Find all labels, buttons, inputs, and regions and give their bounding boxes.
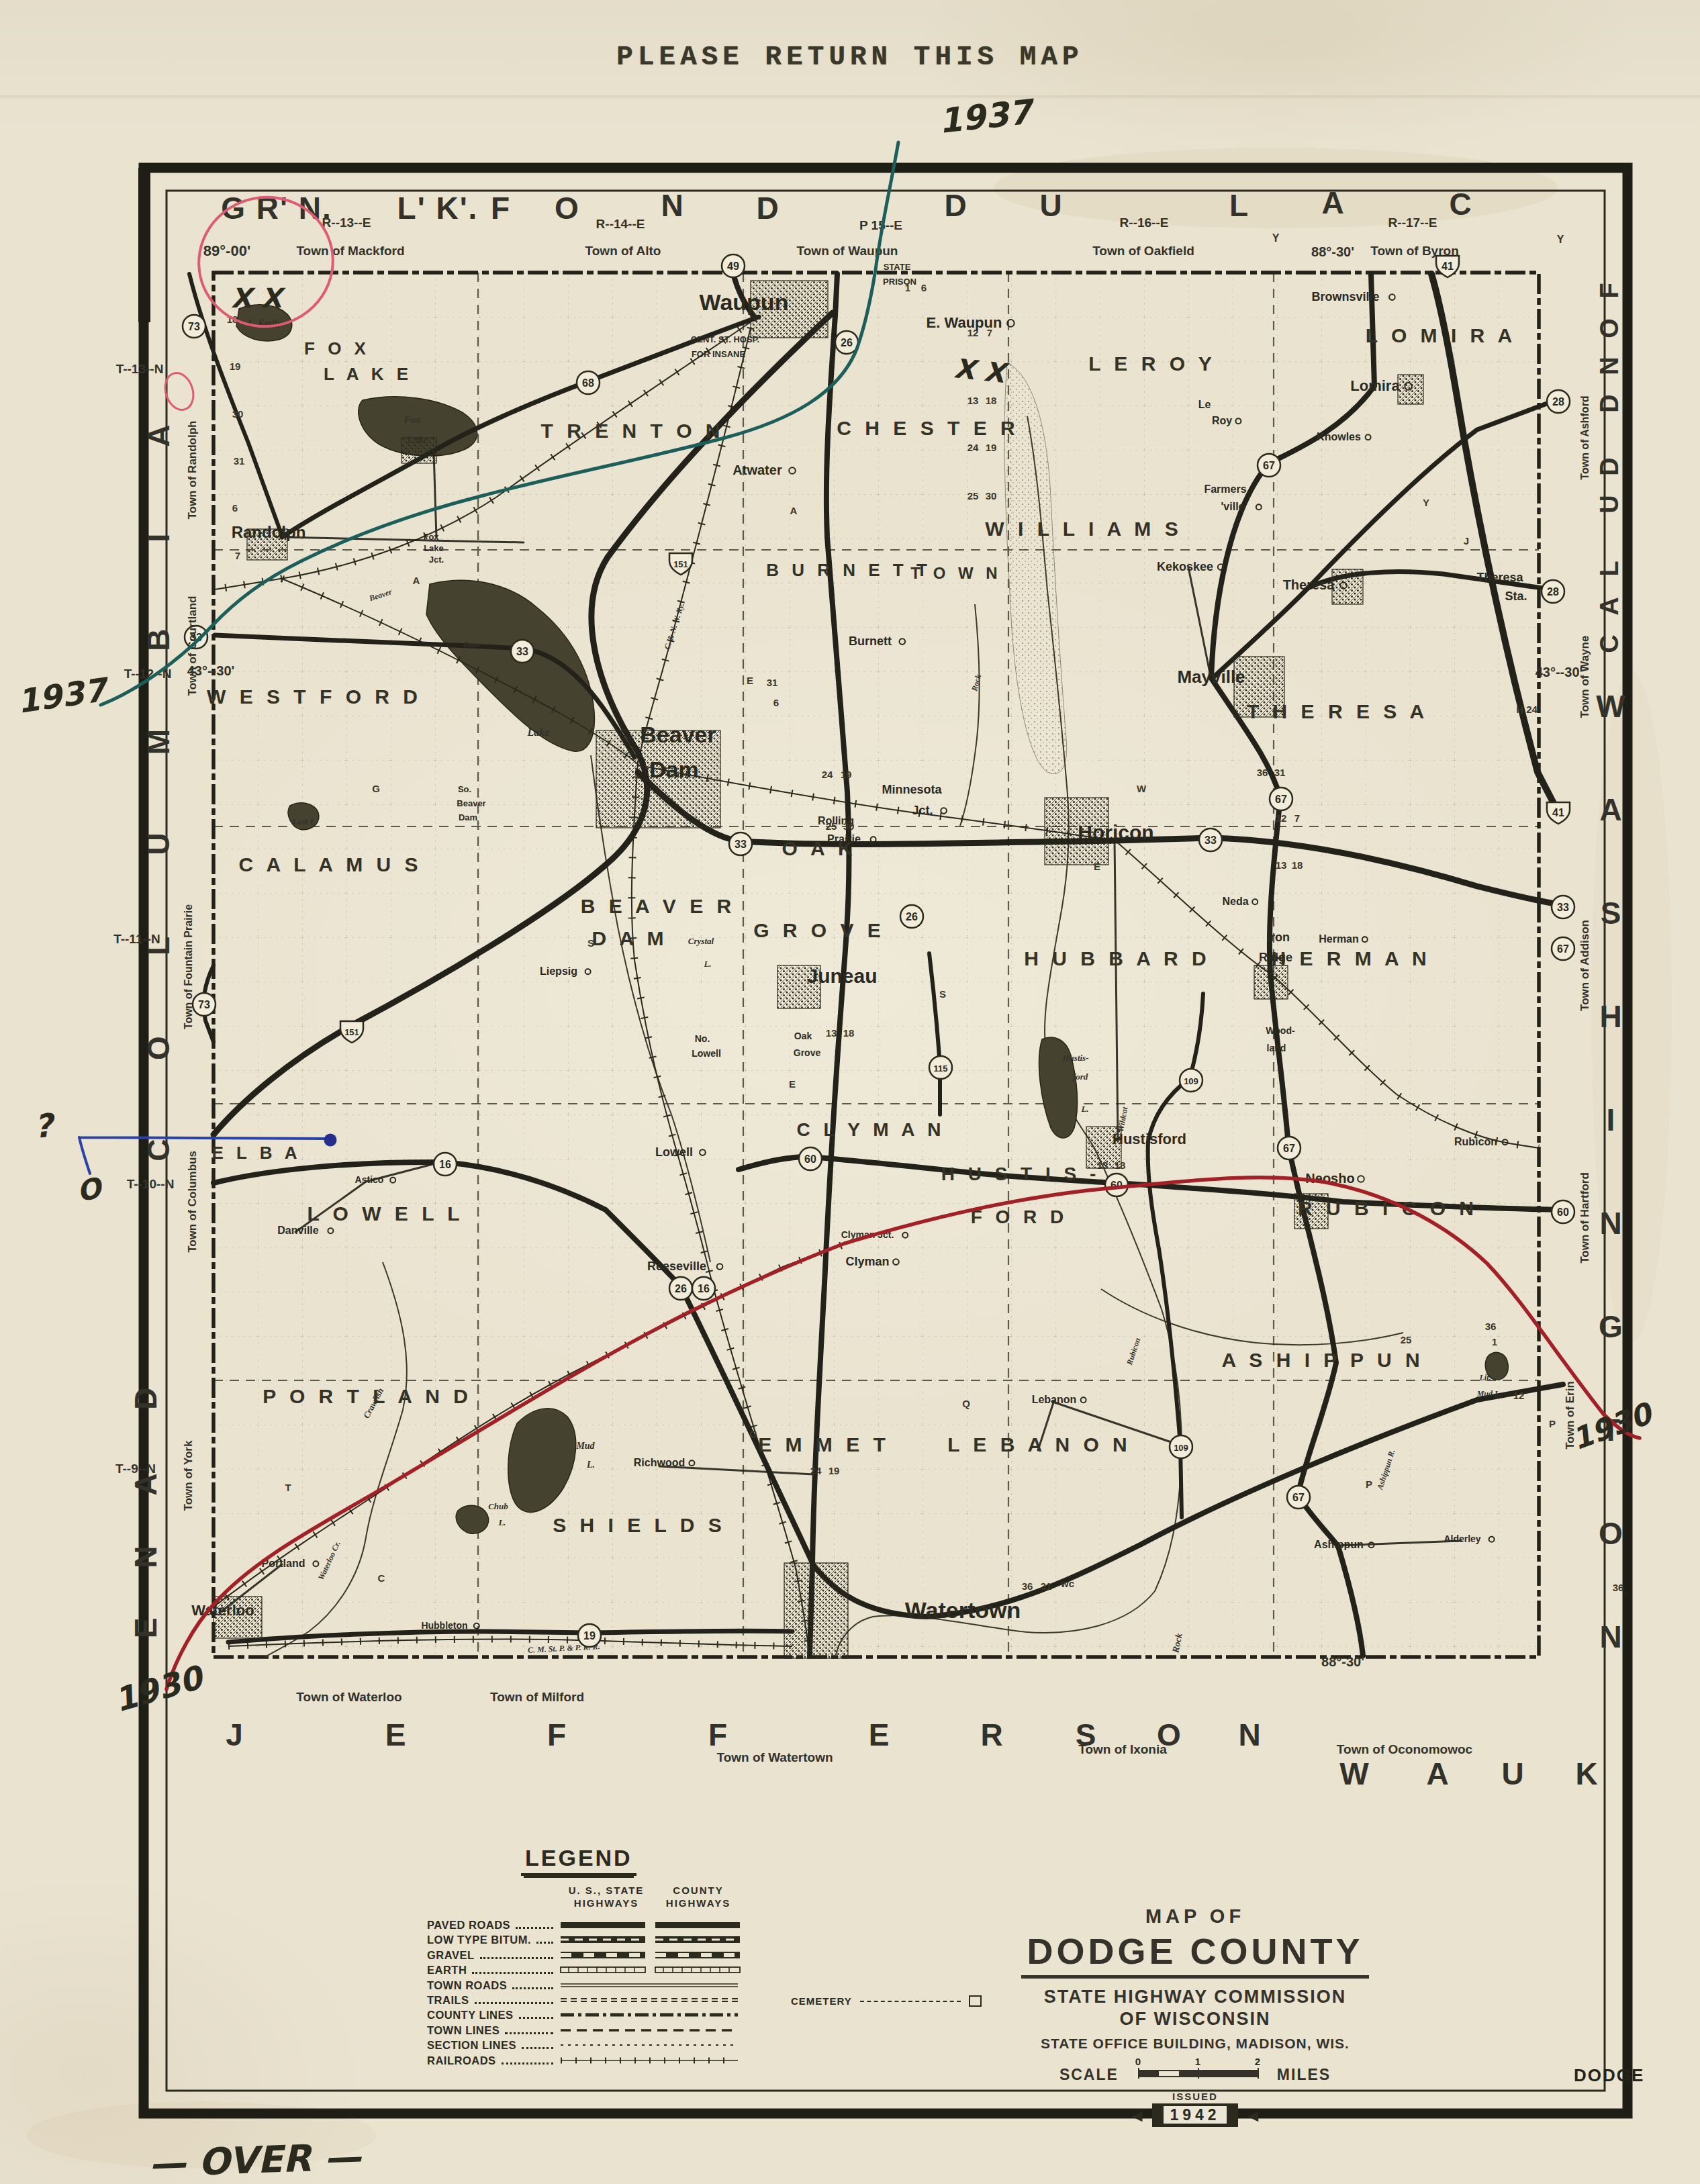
border-label: 88°-30' xyxy=(1311,244,1354,259)
highway-number: 151 xyxy=(344,1027,359,1037)
legend-row-text: PAVED ROADS xyxy=(427,1919,510,1932)
township-label: E M M E T xyxy=(758,1433,890,1456)
state-highway-shield-28: 28 xyxy=(1542,580,1564,603)
border-label: T--9--N xyxy=(115,1462,156,1476)
adjacent-county-letter: S xyxy=(1601,896,1623,931)
issued-year-box: 1942 xyxy=(1152,2103,1237,2127)
place-label: Lowell xyxy=(655,1145,693,1159)
adjacent-county-letter: W xyxy=(1596,689,1626,724)
adjacent-county-letter: R xyxy=(980,1717,1004,1752)
legend-row-gravel: GRAVEL xyxy=(415,1948,751,1962)
section-number: 36 xyxy=(1485,1321,1497,1332)
place-label: Watertown xyxy=(905,1597,1021,1623)
section-number: 19 xyxy=(841,769,852,780)
legend-row-county_lines: COUNTY LINES xyxy=(415,2007,751,2022)
section-number: 12 xyxy=(1513,1390,1525,1401)
section-number: 30 xyxy=(843,820,855,832)
adjacent-county-letter: E xyxy=(128,1617,163,1639)
legend-leader xyxy=(522,2039,553,2049)
legend-swatch-us-state xyxy=(559,1934,647,1948)
section-number: 7 xyxy=(1294,812,1300,824)
state-highway-shield-19: 19 xyxy=(578,1624,601,1647)
highway-number: 28 xyxy=(1552,396,1564,408)
highway-number: 26 xyxy=(675,1283,687,1294)
township-label: T H E R E S A xyxy=(1247,700,1428,722)
township-label: H E R M A N xyxy=(1271,947,1430,969)
township-label: L E B A N O N xyxy=(947,1433,1131,1456)
place-label: Kekoskee xyxy=(1157,560,1213,573)
legend-swatch-bitum xyxy=(559,1934,647,1945)
border-label: Y xyxy=(1557,234,1564,245)
state-highway-shield-109: 109 xyxy=(1170,1435,1192,1458)
place-label: Alderley xyxy=(1444,1533,1480,1544)
place-label: Waterloo xyxy=(191,1602,254,1619)
legend-swatch xyxy=(559,1980,739,1993)
township-label: W E S T F O R D xyxy=(207,685,422,708)
adjacent-county-letter: F xyxy=(547,1717,567,1752)
highway-number: 41 xyxy=(1442,260,1454,272)
highway-number: 16 xyxy=(698,1283,710,1294)
place-label: Beaver xyxy=(640,722,716,747)
water-label: L. xyxy=(498,1517,506,1527)
water-label: ford xyxy=(1073,1072,1088,1082)
section-number: 18 xyxy=(1115,1159,1126,1171)
miles-label: MILES xyxy=(1277,2066,1331,2084)
border-label: Town of Fountain Prairie xyxy=(183,904,194,1029)
adjacent-county-letter: D xyxy=(128,1386,163,1409)
section-number: 25 xyxy=(1401,1334,1412,1345)
border-label: T--10--N xyxy=(127,1177,175,1191)
state-highway-shield-33: 33 xyxy=(1199,828,1222,851)
adjacent-county-letter: H xyxy=(1599,999,1623,1034)
legend-row-town_roads: TOWN ROADS xyxy=(415,1978,751,1993)
adjacent-county-letter: F xyxy=(1595,281,1623,298)
adjacent-county-letter: E xyxy=(869,1717,891,1752)
highway-number: 109 xyxy=(1184,1076,1198,1086)
map-sheet: PLEASE RETURN THIS MAP xyxy=(0,0,1700,2184)
place-label: Horicon xyxy=(1078,821,1153,843)
border-label: T--11--N xyxy=(113,932,160,946)
place-label: Wood- xyxy=(1266,1025,1295,1036)
water-label: Lit. xyxy=(1479,1373,1491,1382)
section-number: E xyxy=(747,675,753,686)
state-highway-shield-115: 115 xyxy=(929,1056,952,1079)
adjacent-county-letter: N xyxy=(128,1544,163,1568)
water-label: L. xyxy=(703,959,711,969)
border-label: Town of Hartford xyxy=(1578,1172,1591,1264)
border-label: Town of Oakfield xyxy=(1092,244,1194,258)
township-label: S H I E L D S xyxy=(553,1514,726,1536)
section-number: 36 xyxy=(1613,1582,1624,1593)
handwritten-blue-dot xyxy=(324,1134,337,1147)
place-label: Herman xyxy=(1319,933,1359,945)
section-number: 19 xyxy=(230,361,241,372)
legend-row-text: GRAVEL xyxy=(427,1949,475,1962)
section-number: 31 xyxy=(1274,767,1286,778)
title-of-wisconsin: OF WISCONSIN xyxy=(1007,2009,1383,2030)
border-label: Town of Randolph xyxy=(186,421,199,520)
adjacent-county-letter: N xyxy=(1238,1717,1262,1752)
adjacent-county-letter: I xyxy=(141,532,176,542)
section-number: E xyxy=(789,1078,796,1090)
state-highway-shield-67: 67 xyxy=(1270,788,1292,810)
border-label: Town of Waterloo xyxy=(296,1690,402,1704)
legend-swatch-railroads xyxy=(559,2055,739,2066)
place-label: Reeseville xyxy=(647,1260,706,1273)
place-label: Danville xyxy=(277,1225,318,1236)
section-number: 18 xyxy=(1292,859,1303,871)
adjacent-county-letter: U xyxy=(1501,1756,1525,1791)
highway-number: 67 xyxy=(1557,943,1569,955)
place-label: Clyman xyxy=(845,1255,889,1268)
adjacent-county-letter: D xyxy=(1595,393,1623,412)
place-label: Knowles xyxy=(1317,431,1361,442)
highway-number: 109 xyxy=(1174,1443,1188,1453)
place-label: Rubicon xyxy=(1454,1136,1497,1147)
township-label: F O X xyxy=(304,338,370,359)
legend-leader xyxy=(480,1949,553,1959)
border-label: Town of Milford xyxy=(490,1690,584,1704)
township-label: C A L A M U S xyxy=(239,853,422,875)
highway-number: 33 xyxy=(735,839,747,850)
highway-number: 28 xyxy=(1547,586,1559,598)
adjacent-county-letter: O xyxy=(1599,1516,1624,1551)
title-commission: STATE HIGHWAY COMMISSION xyxy=(1007,1987,1383,2007)
township-label: C L Y M A N xyxy=(796,1119,945,1140)
place-label: Waupun xyxy=(700,289,789,315)
city-theresa xyxy=(1332,569,1363,604)
legend-row-railroads: RAILROADS xyxy=(415,2053,751,2068)
place-label: Astico xyxy=(355,1174,384,1185)
place-label: Fox xyxy=(423,532,439,542)
place-label: Theresa xyxy=(1283,577,1335,592)
section-number: 13 xyxy=(1276,859,1287,871)
legend-swatch xyxy=(559,2009,739,2023)
adjacent-county-letter: N xyxy=(1599,1619,1623,1654)
state-highway-shield-73: 73 xyxy=(193,993,216,1016)
section-number: 25 xyxy=(826,820,837,832)
legend-swatch-town_lines xyxy=(559,2025,739,2036)
city-iron-ridge xyxy=(1254,965,1288,999)
state-highway-shield-68: 68 xyxy=(577,371,600,394)
state-highway-shield-60: 60 xyxy=(1552,1200,1574,1223)
legend-row-text: LOW TYPE BITUM. xyxy=(427,1934,531,1946)
legend-swatch-county xyxy=(654,1934,741,1948)
legend-row-trails: TRAILS xyxy=(415,1993,751,2007)
adjacent-county-letter: F xyxy=(491,191,511,226)
legend-leader xyxy=(536,1934,553,1944)
highway-number: 67 xyxy=(1275,794,1287,805)
legend-row-label: EARTH xyxy=(427,1964,556,1977)
water-label: Mud xyxy=(575,1441,595,1451)
adjacent-county-letter: D xyxy=(944,188,967,223)
place-label: 'ville xyxy=(1221,501,1245,512)
section-number: 12 xyxy=(967,327,979,338)
legend: LEGEND U. S., STATE HIGHWAYS COUNTY HIGH… xyxy=(415,1845,751,2068)
legend-row-town_lines: TOWN LINES xyxy=(415,2023,751,2038)
section-number: P xyxy=(1366,1478,1372,1490)
cemetery-symbol-icon xyxy=(969,1995,982,2007)
township-label: H U S T I S - xyxy=(941,1164,1100,1184)
section-number: 6 xyxy=(921,282,927,293)
place-label: Liepsig xyxy=(540,965,577,977)
legend-row-label: TRAILS xyxy=(427,1994,556,2007)
border-label: T--13--N xyxy=(116,362,164,376)
section-number: 13 xyxy=(826,1027,837,1039)
place-label: Iron xyxy=(1267,931,1290,944)
adjacent-county-letter: A xyxy=(1426,1756,1450,1791)
scale-row: SCALE 0 1 2 MILES xyxy=(1007,2057,1383,2084)
place-label: Roy xyxy=(1212,415,1232,426)
section-number: J xyxy=(1464,535,1469,547)
section-number: 25 xyxy=(967,490,979,502)
township-label: L O W E L L xyxy=(307,1202,463,1225)
highway-number: 68 xyxy=(582,377,594,389)
section-number: Y xyxy=(1423,497,1429,508)
place-label: Richwood xyxy=(634,1457,685,1468)
legend-swatch-us-state xyxy=(559,1964,647,1978)
township-label: T R E N T O N xyxy=(541,420,724,442)
place-label: Farmers xyxy=(1204,483,1246,495)
water-label: L. xyxy=(1080,1104,1088,1114)
legend-row-text: COUNTY LINES xyxy=(427,2009,514,2022)
water-label: Mud L. xyxy=(1476,1389,1502,1398)
section-number: G xyxy=(749,1428,757,1439)
place-label: Lake xyxy=(424,543,444,553)
adjacent-county-letter: M xyxy=(141,728,176,755)
adjacent-county-letter: G xyxy=(1599,1309,1624,1344)
adjacent-county-letter: U xyxy=(1039,188,1063,223)
border-label: R--13--E xyxy=(322,216,371,230)
handwritten-xx-lake-emily: X X xyxy=(231,283,286,314)
adjacent-county-letter: E xyxy=(385,1717,408,1752)
scale-bar: 0 1 2 xyxy=(1131,2057,1265,2084)
highway-number: 151 xyxy=(673,559,688,569)
legend-rows: PAVED ROADSLOW TYPE BITUM.GRAVELEARTHTOW… xyxy=(415,1917,751,2068)
highway-number: 19 xyxy=(583,1630,596,1642)
section-number: 19 xyxy=(986,442,997,453)
legend-swatch-section_lines xyxy=(559,2040,739,2050)
place-label: PRISON xyxy=(883,277,916,287)
highway-number: 33 xyxy=(1205,835,1217,846)
place-label: No. xyxy=(695,1033,710,1044)
water-label: Fox xyxy=(403,414,421,425)
border-label: Town of Ashford xyxy=(1579,395,1591,479)
adjacent-county-letter: A xyxy=(1321,185,1345,220)
legend-swatch-earth xyxy=(559,1964,647,1975)
section-number: 1 xyxy=(1492,1336,1497,1347)
legend-row-text: TOWN ROADS xyxy=(427,1979,507,1992)
border-label: 43°--30' xyxy=(1536,665,1583,679)
adjacent-county-letter: C xyxy=(141,1137,176,1161)
legend-row-text: SECTION LINES xyxy=(427,2039,516,2052)
legend-row-bitum: LOW TYPE BITUM. xyxy=(415,1932,751,1947)
adjacent-county-letter: B xyxy=(141,627,176,651)
state-highway-shield-26: 26 xyxy=(900,905,923,928)
highway-number: 60 xyxy=(1557,1206,1569,1218)
state-highway-shield-73: 73 xyxy=(183,315,205,338)
section-number: W xyxy=(1137,783,1147,794)
adjacent-county-letter: F xyxy=(708,1717,728,1752)
svg-text:2: 2 xyxy=(1255,2057,1262,2067)
legend-leader xyxy=(472,1964,553,1974)
water-label: Lake xyxy=(527,726,550,738)
adjacent-county-letter: L xyxy=(1595,559,1623,576)
place-label: Jct. xyxy=(912,804,933,817)
adjacent-county-letter: L xyxy=(1229,188,1249,223)
issued-year: 1942 xyxy=(1163,2105,1227,2124)
place-label: Lowell xyxy=(692,1048,721,1059)
water-label: Crystal xyxy=(688,936,714,946)
place-label: Minnesota xyxy=(882,783,942,796)
adjacent-county-letter: A xyxy=(1595,596,1623,615)
water-label: Hustis- xyxy=(1061,1053,1088,1063)
highway-number: 73 xyxy=(188,321,200,332)
section-number: S xyxy=(939,988,946,1000)
section-number: A xyxy=(790,505,798,516)
adjacent-county-letter: O xyxy=(1595,317,1623,338)
place-label: Brownsville xyxy=(1311,290,1379,303)
adjacent-county-letter: G R' N. xyxy=(221,191,332,226)
handwritten-over: — OVER — xyxy=(148,2135,363,2184)
handwritten-o: O xyxy=(74,1171,107,1208)
legend-swatch-county_lines xyxy=(559,2009,739,2020)
water-label: L. xyxy=(586,1460,595,1470)
adjacent-county-letter: U xyxy=(141,831,176,855)
border-label: Town of York xyxy=(182,1440,195,1511)
state-highway-shield-60: 60 xyxy=(799,1147,822,1170)
section-number: 30 xyxy=(232,408,244,420)
adjacent-county-letter: C xyxy=(1449,187,1472,222)
place-label: So. xyxy=(458,784,471,794)
legend-swatch-gravel xyxy=(559,1950,647,1960)
township-label: G R O V E xyxy=(753,919,885,941)
place-label: Juneau xyxy=(806,965,877,987)
border-label: R--17--E xyxy=(1388,216,1437,230)
section-number: 6 xyxy=(773,697,779,708)
legend-leader xyxy=(512,1979,553,1989)
handwritten-1937-top: 1937 xyxy=(937,92,1037,141)
legend-swatch-county xyxy=(654,1919,741,1933)
scale-label: SCALE xyxy=(1059,2066,1119,2084)
legend-swatch xyxy=(559,2040,739,2053)
township-label: E L B A xyxy=(211,1143,301,1163)
border-label: Town of Waupun xyxy=(797,244,898,258)
svg-text:0: 0 xyxy=(1135,2057,1142,2067)
place-label: Sta. xyxy=(1505,589,1527,603)
adjacent-county-letter: D xyxy=(1595,456,1623,475)
border-label: Town of Columbus xyxy=(186,1151,199,1253)
handwritten-xx-e-waupun: X X xyxy=(953,352,1010,389)
section-number: 7 xyxy=(235,550,240,561)
water-label: Lake xyxy=(407,434,428,445)
section-number: 24 xyxy=(822,769,833,780)
highway-number: 33 xyxy=(516,646,528,657)
sheet-name: DODGE xyxy=(1574,2065,1644,2086)
state-highway-shield-109: 109 xyxy=(1180,1069,1202,1092)
adjacent-county-letter: A xyxy=(141,423,176,446)
township-label: L A K E xyxy=(324,364,412,384)
place-label: STATE xyxy=(884,262,911,272)
adjacent-county-letter: N xyxy=(661,188,684,223)
border-label: Town of Alto xyxy=(585,244,661,258)
section-number: 24 xyxy=(810,1465,822,1476)
left-arrow-icon: ◄ xyxy=(1129,2107,1146,2124)
adjacent-county-letter: L' K'. xyxy=(397,191,479,226)
place-label: CENT. ST. HOSP. xyxy=(691,334,759,344)
township-label: C H E S T E R xyxy=(837,417,1019,439)
legend-row-label: TOWN ROADS xyxy=(427,1979,556,1992)
adjacent-county-letter: W xyxy=(1339,1756,1370,1791)
adjacent-county-letter: J xyxy=(226,1717,244,1752)
adjacent-county-letter: D xyxy=(756,191,780,226)
legend-swatch-county xyxy=(654,1964,741,1978)
legend-row-label: SECTION LINES xyxy=(427,2039,556,2052)
adjacent-county-letter: O xyxy=(141,1035,176,1060)
issued-year-row: ◄ 1942 ◄ xyxy=(1007,2103,1383,2127)
state-highway-shield-33: 33 xyxy=(729,833,752,855)
cemetery-label: CEMETERY xyxy=(791,1995,852,2007)
township-label: B U R N E T T xyxy=(766,560,931,580)
highway-number: 33 xyxy=(1557,902,1569,913)
section-number: 19 xyxy=(829,1465,840,1476)
section-number: 31 xyxy=(767,677,778,688)
highway-number: 115 xyxy=(934,1063,948,1074)
section-number: 18 xyxy=(843,1027,855,1039)
legend-row-label: LOW TYPE BITUM. xyxy=(427,1934,556,1946)
legend-swatch-us-state xyxy=(559,1950,647,1963)
place-label: Dam xyxy=(459,812,477,822)
state-highway-shield-28: 28 xyxy=(1547,390,1570,413)
township-label: L O M I R A xyxy=(1366,324,1516,346)
section-number: 13 xyxy=(967,395,979,406)
section-number: 6 xyxy=(232,502,238,514)
border-label: 89°-00' xyxy=(203,242,250,259)
township-label: F O R D xyxy=(971,1206,1068,1227)
section-number: G xyxy=(372,783,380,794)
section-number: 1 xyxy=(905,282,910,293)
section-number: 24 xyxy=(967,442,979,453)
legend-row-text: RAILROADS xyxy=(427,2054,496,2067)
section-number: A xyxy=(413,575,420,586)
legend-row-label: PAVED ROADS xyxy=(427,1919,556,1932)
legend-row-text: EARTH xyxy=(427,1964,467,1977)
place-label: Beaver xyxy=(457,798,485,808)
legend-title: LEGEND xyxy=(521,1845,636,1876)
water-label: Dam xyxy=(463,640,479,649)
township-label: A S H I P P U N xyxy=(1221,1349,1423,1371)
title-map-of: MAP OF xyxy=(1007,1905,1383,1928)
highway-number: 49 xyxy=(727,260,739,272)
place-label: Dam xyxy=(649,757,699,782)
legend-row-text: TOWN LINES xyxy=(427,2024,500,2037)
legend-row-label: COUNTY LINES xyxy=(427,2009,556,2022)
section-number: P xyxy=(1549,1418,1556,1429)
border-label: Town of Ixonia xyxy=(1078,1742,1167,1756)
place-label: FOR INSANE xyxy=(692,349,746,359)
legend-swatch-us-state xyxy=(559,1919,647,1933)
legend-row-label: GRAVEL xyxy=(427,1949,556,1962)
legend-swatch xyxy=(559,2055,739,2069)
section-number: 30 xyxy=(986,490,997,502)
legend-swatch-gravel xyxy=(654,1950,741,1960)
place-label: Lebanon xyxy=(1032,1394,1077,1405)
section-number: 31 xyxy=(234,455,245,467)
state-highway-shield-67: 67 xyxy=(1258,454,1280,477)
border-label: Town of Addison xyxy=(1578,920,1591,1011)
township-label: L E R O Y xyxy=(1088,352,1216,375)
highway-number: 67 xyxy=(1292,1492,1305,1503)
